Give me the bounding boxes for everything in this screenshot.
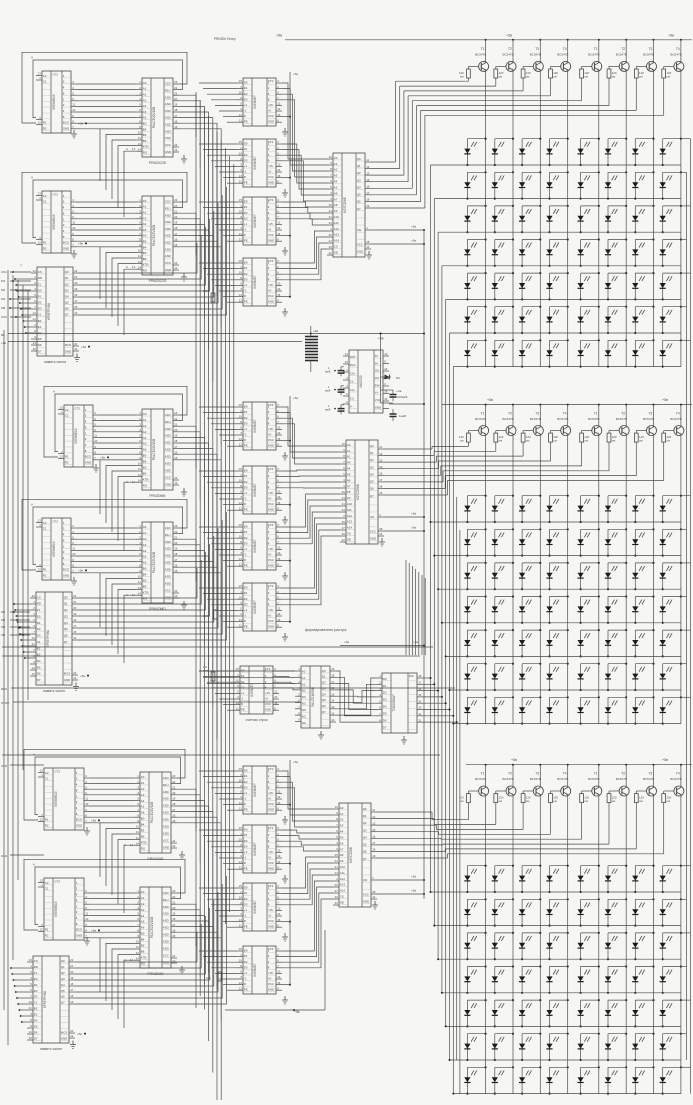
svg-text:C2: C2: [65, 408, 69, 412]
svg-text:11: 11: [138, 467, 141, 471]
svg-text:A: A: [124, 843, 126, 847]
svg-text:12: 12: [277, 907, 281, 911]
svg-text:D6: D6: [34, 1031, 38, 1035]
svg-text:T4: T4: [676, 772, 680, 776]
svg-text:ом: ом: [666, 74, 670, 78]
svg-text:КР537РУ8А: КР537РУ8А: [43, 990, 47, 1008]
svg-text:VCC: VCC: [268, 802, 274, 806]
svg-text:A0: A0: [143, 525, 147, 529]
svg-text:NC: NC: [302, 695, 306, 699]
svg-text:D2: D2: [244, 416, 248, 420]
svg-text:13: 13: [40, 769, 44, 773]
svg-text:12: 12: [74, 347, 78, 351]
svg-text:-1: -1: [244, 977, 247, 981]
svg-text:T3: T3: [535, 412, 539, 416]
svg-text:A: A: [31, 503, 33, 507]
svg-text:R1: R1: [43, 121, 47, 125]
svg-text:A13: A13: [347, 520, 353, 524]
svg-text:ASD: ASD: [163, 912, 169, 916]
svg-text:14: 14: [130, 958, 134, 962]
svg-text:16: 16: [174, 237, 178, 241]
svg-text:A3: A3: [141, 908, 145, 912]
svg-text:D2: D2: [34, 989, 38, 993]
svg-text:C1D: C1D: [165, 82, 171, 86]
svg-text:ASD: ASD: [163, 804, 169, 808]
svg-text:PE: PE: [244, 508, 248, 512]
svg-text:T2: T2: [508, 47, 512, 51]
svg-text:13: 13: [32, 636, 36, 640]
svg-text:Q7: Q7: [61, 1001, 65, 1005]
svg-text:12: 12: [277, 790, 281, 794]
svg-text:C2+: C2+: [350, 388, 356, 392]
svg-text:M8: M8: [1, 306, 5, 310]
svg-text:11: 11: [138, 580, 141, 584]
svg-text:21: 21: [174, 91, 178, 95]
svg-text:A0: A0: [334, 156, 338, 160]
svg-text:Q0: Q0: [363, 807, 367, 811]
svg-text:VCC: VCC: [165, 261, 171, 265]
svg-text:11: 11: [239, 865, 242, 869]
svg-text:+5в: +5в: [78, 122, 83, 126]
svg-text:10: 10: [236, 678, 240, 682]
svg-text:R: R: [244, 861, 246, 865]
svg-text:C2: C2: [45, 771, 49, 775]
svg-text:Q3: Q3: [357, 178, 361, 182]
svg-text:PE: PE: [244, 867, 248, 871]
svg-text:CLR: CLR: [1, 764, 8, 768]
svg-text:GND: GND: [163, 846, 169, 850]
svg-text:RD: RD: [38, 276, 42, 280]
svg-text:D3: D3: [244, 965, 248, 969]
svg-text:10: 10: [94, 439, 98, 443]
svg-text:B0: B0: [143, 567, 147, 571]
svg-text:17: 17: [172, 923, 176, 927]
svg-text:ASD: ASD: [163, 797, 169, 801]
svg-text:D0: D0: [244, 949, 248, 953]
svg-text:Вн: Вн: [1, 333, 5, 337]
svg-text:A1: A1: [347, 449, 351, 453]
svg-text:Q5: Q5: [61, 989, 65, 993]
svg-text:B0: B0: [141, 932, 145, 936]
svg-text:D0: D0: [244, 525, 248, 529]
svg-text:A: A: [126, 593, 128, 597]
svg-text:D3: D3: [244, 602, 248, 606]
svg-text:память чисел: память чисел: [43, 689, 65, 693]
svg-text:C1: C1: [43, 200, 47, 204]
svg-text:NC: NC: [302, 715, 306, 719]
svg-text:24: 24: [73, 671, 77, 675]
svg-text:19: 19: [174, 103, 178, 107]
svg-text:+5в: +5в: [506, 33, 512, 37]
svg-text:D2: D2: [244, 536, 248, 540]
svg-text:A2: A2: [143, 211, 147, 215]
svg-text:12: 12: [60, 455, 64, 459]
svg-text:15: 15: [379, 465, 383, 469]
svg-text:T4: T4: [676, 412, 680, 416]
svg-text:ом: ом: [639, 799, 643, 803]
svg-text:11: 11: [239, 623, 242, 627]
svg-text:Q5: Q5: [363, 843, 367, 847]
svg-text:RD: RD: [37, 602, 41, 606]
svg-text:A5: A5: [141, 805, 145, 809]
svg-text:13: 13: [277, 168, 281, 172]
svg-text:+1: +1: [244, 908, 248, 912]
svg-text:25: 25: [329, 203, 333, 207]
svg-text:10: 10: [342, 442, 346, 446]
svg-text:ом: ом: [526, 439, 530, 443]
svg-text:17: 17: [73, 624, 77, 628]
svg-text:К555ИЕ19: К555ИЕ19: [74, 428, 78, 443]
svg-text:D3: D3: [244, 158, 248, 162]
svg-text:<0: <0: [268, 228, 272, 232]
svg-text:BC547B: BC547B: [530, 52, 541, 56]
svg-text:D5: D5: [38, 337, 42, 341]
svg-text:16: 16: [379, 472, 383, 476]
svg-text:R: R: [244, 294, 246, 298]
svg-text:ASD: ASD: [163, 905, 169, 909]
svg-text:13: 13: [136, 836, 140, 840]
svg-text:13: 13: [277, 495, 281, 499]
svg-text:D1: D1: [244, 833, 248, 837]
svg-text:<0: <0: [268, 614, 272, 618]
svg-text:+5в: +5в: [80, 674, 85, 678]
svg-text:D0: D0: [244, 469, 248, 473]
svg-text:Q1: Q1: [65, 276, 69, 280]
svg-text:14: 14: [32, 666, 36, 670]
svg-text:16: 16: [274, 701, 278, 705]
svg-text:D0: D0: [244, 261, 248, 265]
svg-text:A4: A4: [334, 180, 338, 184]
svg-text:19: 19: [372, 854, 376, 858]
svg-text:A: A: [31, 56, 33, 60]
svg-text:К155ИЕ7: К155ИЕ7: [253, 783, 257, 797]
svg-text:C2: C2: [43, 194, 47, 198]
svg-text:<0: <0: [268, 856, 272, 860]
svg-text:R1: R1: [45, 818, 49, 822]
svg-text:22: 22: [335, 901, 339, 905]
svg-text:PALCE22V10B: PALCE22V10B: [152, 225, 156, 247]
svg-text:BC547B: BC547B: [670, 777, 681, 781]
svg-text:+5в: +5в: [91, 819, 96, 823]
svg-text:T1: T1: [481, 412, 485, 416]
svg-text:23: 23: [33, 269, 37, 273]
svg-text:VCC: VCC: [268, 861, 274, 865]
svg-text:12: 12: [277, 221, 281, 225]
svg-text:11: 11: [136, 945, 139, 949]
svg-text:15: 15: [239, 523, 243, 527]
svg-text:ом: ом: [526, 74, 530, 78]
svg-text:12: 12: [174, 481, 178, 485]
svg-text:26: 26: [335, 883, 339, 887]
svg-text:13: 13: [277, 107, 281, 111]
svg-text:10: 10: [239, 595, 243, 599]
svg-text:GND: GND: [268, 300, 274, 304]
svg-text:10: 10: [239, 151, 243, 155]
svg-text:A6: A6: [143, 561, 147, 565]
svg-text:20: 20: [335, 895, 339, 899]
svg-text:A2: A2: [141, 787, 145, 791]
svg-text:T2: T2: [508, 772, 512, 776]
svg-text:OU: OU: [375, 376, 379, 380]
svg-text:10К: 10К: [206, 976, 211, 980]
svg-text:21: 21: [70, 964, 74, 968]
svg-text:D2: D2: [244, 480, 248, 484]
svg-text:16: 16: [277, 174, 281, 178]
svg-text:22: 22: [172, 895, 176, 899]
svg-text:CS1: CS1: [1, 270, 7, 274]
svg-text:16: 16: [277, 437, 281, 441]
svg-text:Q0: Q0: [61, 959, 65, 963]
svg-text:D2: D2: [37, 627, 41, 631]
svg-text:11: 11: [239, 506, 242, 510]
svg-text:12: 12: [73, 676, 77, 680]
svg-text:D2: D2: [38, 301, 42, 305]
svg-text:21: 21: [32, 642, 36, 646]
svg-text:11: 11: [94, 434, 97, 438]
svg-text:-1: -1: [244, 289, 247, 293]
svg-text:10: 10: [72, 226, 76, 230]
svg-text:PE: PE: [244, 925, 248, 929]
svg-text:CS: CS: [38, 270, 42, 274]
svg-text:A5: A5: [143, 442, 147, 446]
svg-text:A8: A8: [334, 203, 338, 207]
svg-text:R: R: [244, 619, 246, 623]
svg-text:10: 10: [239, 209, 243, 213]
svg-text:10: 10: [136, 825, 140, 829]
svg-text:D1: D1: [244, 474, 248, 478]
svg-text:11: 11: [239, 806, 242, 810]
svg-text:11: 11: [372, 808, 375, 812]
svg-text:16: 16: [277, 557, 281, 561]
svg-text:CT2: CT2: [53, 73, 59, 77]
svg-text:ом: ом: [639, 439, 643, 443]
svg-text:<0: <0: [268, 914, 272, 918]
svg-text:R2: R2: [43, 247, 47, 251]
svg-text:A4: A4: [143, 549, 147, 553]
svg-text:A6: A6: [141, 926, 145, 930]
svg-text:11: 11: [138, 136, 141, 140]
svg-text:BC547B: BC547B: [588, 777, 599, 781]
svg-text:KTB: KTB: [141, 841, 147, 845]
svg-text:GND: GND: [375, 405, 381, 409]
svg-text:D7: D7: [37, 678, 41, 682]
svg-text:B5: B5: [143, 579, 147, 583]
svg-text:13: 13: [277, 912, 281, 916]
svg-text:Ubr: Ubr: [363, 878, 368, 882]
svg-text:11: 11: [85, 797, 88, 801]
svg-text:MAX232: MAX232: [359, 375, 363, 387]
svg-text:A8: A8: [340, 853, 344, 857]
svg-text:BC547B: BC547B: [643, 52, 654, 56]
svg-text:RG: RG: [143, 269, 148, 273]
svg-text:<0: <0: [268, 289, 272, 293]
svg-text:D2: D2: [241, 680, 245, 684]
svg-text:Q3: Q3: [64, 614, 68, 618]
svg-text:OE: OE: [334, 251, 338, 255]
svg-text:+1: +1: [244, 547, 248, 551]
svg-text:RG: RG: [143, 483, 148, 487]
svg-text:ASD: ASD: [165, 575, 171, 579]
svg-text:ом: ом: [612, 74, 616, 78]
svg-text:GND: GND: [268, 181, 274, 185]
svg-text:память числа: память числа: [44, 360, 66, 364]
svg-text:ASD: ASD: [163, 947, 169, 951]
svg-text:КР537РУ8А: КР537РУ8А: [47, 302, 51, 320]
svg-text:ASD: ASD: [165, 123, 171, 127]
svg-text:+5в: +5в: [294, 1010, 300, 1014]
svg-text:D3: D3: [244, 97, 248, 101]
svg-text:D0: D0: [244, 769, 248, 773]
svg-text:+Uв: +Uв: [396, 389, 402, 393]
svg-text:К555ИЕ19: К555ИЕ19: [52, 541, 56, 556]
svg-text:Z1: Z1: [37, 608, 41, 612]
svg-text:BC547B: BC547B: [557, 52, 568, 56]
svg-text:-1: -1: [244, 553, 247, 557]
svg-text:10: 10: [85, 802, 89, 806]
svg-text:A1: A1: [141, 781, 145, 785]
svg-text:17: 17: [372, 841, 376, 845]
svg-text:RG: RG: [141, 846, 146, 850]
svg-text:12: 12: [38, 241, 42, 245]
svg-text:PE: PE: [244, 564, 248, 568]
svg-text:C1: C1: [34, 1001, 38, 1005]
svg-text:GND: GND: [265, 708, 271, 712]
svg-text:15: 15: [174, 243, 178, 247]
svg-text:11: 11: [239, 562, 242, 566]
svg-text:+1: +1: [244, 222, 248, 226]
svg-text:16: 16: [277, 113, 281, 117]
svg-text:27: 27: [335, 889, 339, 893]
svg-text:Q7: Q7: [322, 710, 326, 714]
svg-text:Q4: Q4: [61, 983, 65, 987]
svg-text:15: 15: [239, 884, 243, 888]
svg-text:15: 15: [74, 305, 78, 309]
svg-text:A1: A1: [334, 162, 338, 166]
svg-text:ом: ом: [460, 439, 464, 443]
svg-text:12: 12: [70, 1034, 74, 1038]
svg-text:D6: D6: [383, 719, 387, 723]
svg-text:A4: A4: [347, 467, 351, 471]
svg-text:23: 23: [329, 221, 333, 225]
svg-text:17: 17: [418, 681, 422, 685]
svg-text:D2: D2: [244, 780, 248, 784]
svg-text:21: 21: [174, 422, 178, 426]
svg-text:>15: >15: [268, 222, 273, 226]
svg-text:BC547B: BC547B: [503, 52, 514, 56]
svg-text:D0: D0: [34, 977, 38, 981]
svg-text:14: 14: [130, 843, 134, 847]
svg-text:V+: V+: [375, 391, 379, 395]
svg-text:ом: ом: [584, 799, 588, 803]
svg-text:14: 14: [138, 265, 142, 269]
svg-text:BC547B: BC547B: [670, 417, 681, 421]
svg-text:22: 22: [74, 269, 78, 273]
svg-text:ом: ом: [499, 74, 503, 78]
svg-text:>15: >15: [268, 164, 273, 168]
svg-text:13: 13: [277, 854, 281, 858]
svg-text:D1: D1: [37, 621, 41, 625]
svg-text:D3: D3: [38, 307, 42, 311]
svg-text:13: 13: [74, 311, 78, 315]
svg-text:D3: D3: [383, 698, 387, 702]
svg-text:GND: GND: [64, 678, 70, 682]
svg-text:R: R: [244, 114, 246, 118]
svg-text:BC547B: BC547B: [616, 417, 627, 421]
svg-text:GND: GND: [268, 988, 274, 992]
svg-text:ASD: ASD: [165, 434, 171, 438]
svg-text:12: 12: [277, 426, 281, 430]
svg-text:A2: A2: [141, 902, 145, 906]
svg-text:ASD: ASD: [165, 102, 171, 106]
svg-text:10: 10: [72, 552, 76, 556]
svg-text:CS2: CS2: [1, 315, 7, 319]
svg-text:D0: D0: [244, 200, 248, 204]
svg-text:RD: RD: [34, 965, 38, 969]
svg-text:CS: CS: [347, 532, 351, 536]
svg-text:18: 18: [172, 917, 176, 921]
svg-text:A9: A9: [340, 859, 344, 863]
svg-text:24: 24: [70, 1029, 74, 1033]
svg-text:A5: A5: [143, 555, 147, 559]
svg-text:B5: B5: [143, 466, 147, 470]
svg-text:10: 10: [136, 940, 140, 944]
svg-text:19: 19: [172, 912, 176, 916]
svg-text:VCC: VCC: [268, 175, 274, 179]
svg-text:14: 14: [372, 895, 376, 899]
svg-text:R: R: [241, 702, 243, 706]
svg-text:T3: T3: [535, 772, 539, 776]
svg-text:A4: A4: [141, 914, 145, 918]
svg-text:A6: A6: [143, 448, 147, 452]
svg-text:D3: D3: [244, 216, 248, 220]
svg-text:-1: -1: [244, 497, 247, 501]
svg-text:10: 10: [72, 108, 76, 112]
svg-text:A0: A0: [340, 806, 344, 810]
svg-text:21: 21: [172, 900, 176, 904]
svg-text:CS: CS: [34, 959, 38, 963]
svg-text:13: 13: [277, 795, 281, 799]
svg-text:28: 28: [379, 527, 383, 531]
svg-text:GND: GND: [65, 349, 71, 353]
svg-text:A0: A0: [143, 81, 147, 85]
svg-text:+1: +1: [244, 491, 248, 495]
svg-text:22: 22: [174, 86, 178, 90]
svg-text:14: 14: [138, 478, 142, 482]
svg-text:12: 12: [372, 815, 376, 819]
svg-text:19: 19: [73, 612, 77, 616]
svg-text:TD62083AP: TD62083AP: [392, 694, 396, 711]
svg-text:17: 17: [331, 680, 335, 684]
svg-text:13: 13: [29, 1000, 33, 1004]
svg-text:Q5: Q5: [65, 301, 69, 305]
svg-text:ом: ом: [460, 74, 464, 78]
svg-text:T2: T2: [621, 772, 625, 776]
svg-text:11: 11: [345, 352, 348, 356]
svg-text:13: 13: [40, 879, 44, 883]
svg-text:13: 13: [274, 695, 278, 699]
svg-text:22: 22: [174, 417, 178, 421]
svg-text:14: 14: [239, 232, 243, 236]
svg-text:+5в: +5в: [91, 929, 96, 933]
svg-text:B0: B0: [141, 817, 145, 821]
svg-text:К155ИЕ7: К155ИЕ7: [253, 214, 257, 228]
svg-text:CS: CS: [37, 595, 41, 599]
svg-text:12: 12: [174, 266, 178, 270]
svg-text:D3: D3: [37, 634, 41, 638]
svg-text:11: 11: [72, 547, 75, 551]
svg-text:T2: T2: [621, 47, 625, 51]
svg-text:A5: A5: [143, 228, 147, 232]
